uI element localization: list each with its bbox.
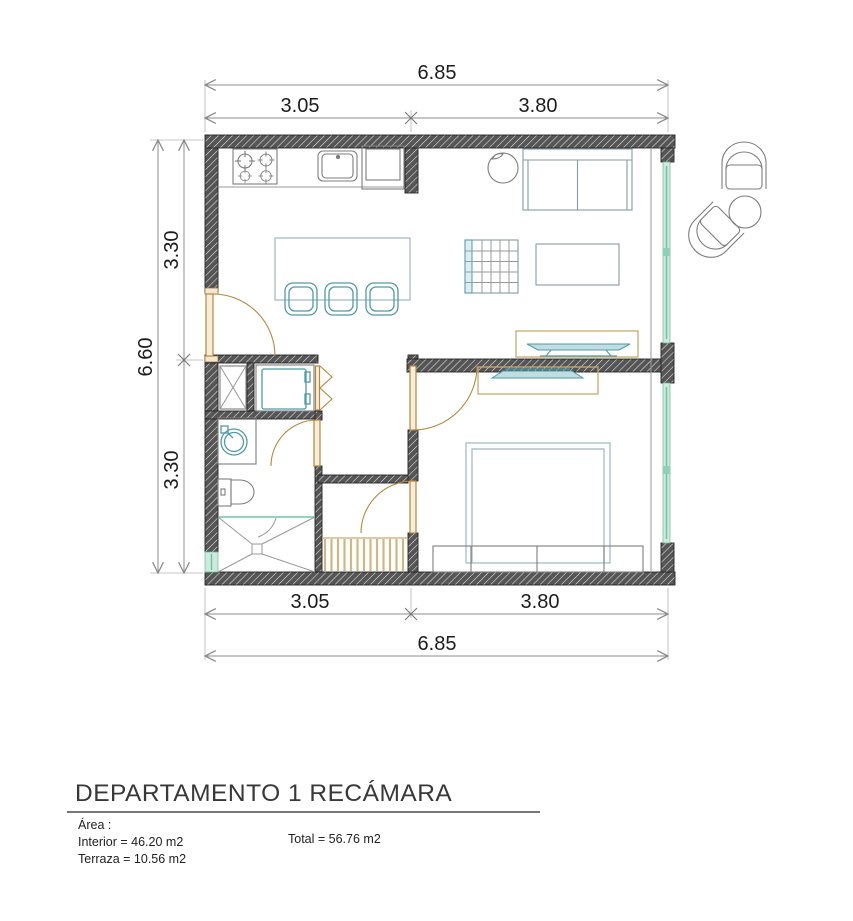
laundry [220,365,332,411]
kitchen-sink-icon [318,151,357,181]
window-pier-bottom [661,543,674,572]
floor-plan-drawing: 6.85 3.05 3.80 6.60 3.30 3.30 3.05 3.80 … [0,0,853,921]
bedroom-door-swing [413,366,477,430]
title-block: DEPARTAMENTO 1 RECÁMARA Área : Interior … [67,780,540,866]
window-pier-top [661,148,674,162]
bathroom-door [271,420,320,466]
wall-kitchen-stub [405,148,418,193]
bar-stools [285,283,398,315]
wall-bottom [205,572,675,585]
window-pier-middle [661,343,674,383]
total-area: Total = 56.76 m2 [288,832,381,846]
doors [205,288,477,533]
dim-bottom-right: 3.80 [521,591,560,613]
terrace-chair-2 [680,202,744,266]
walk-in-closet [322,538,407,571]
dim-bottom-left: 3.05 [291,591,330,613]
washer-icon [256,365,314,411]
dim-top-right: 3.80 [519,95,558,117]
terrace-chair-1 [722,142,766,189]
refrigerator-icon [362,146,404,189]
wall-mid-left [205,355,318,363]
dim-left-lower: 3.30 [161,451,183,490]
utility-shaft [220,366,246,409]
wall-hall-bedroom-c [408,533,418,572]
wall-left-upper [205,148,218,292]
wall-bath-stub [315,411,322,420]
terrace [680,142,766,266]
cooktop-icon [233,149,277,184]
coffee-table [536,244,619,285]
wall-left-lower [205,358,218,552]
wall-living-bedroom-divider [407,359,661,372]
kitchen [218,146,410,315]
glass-mullion-lower [663,466,670,474]
dim-bottom-total: 6.85 [418,633,457,655]
entry-door-swing [213,294,275,356]
toilet-icon [218,479,254,506]
kitchen-island [275,238,410,300]
closet-door [361,481,416,533]
terrace-area: Terraza = 10.56 m2 [78,852,186,866]
bathroom [218,418,315,572]
dim-left-total: 6.60 [135,338,157,377]
sheet-title: DEPARTAMENTO 1 RECÁMARA [75,780,452,807]
tv-living-icon [527,344,630,356]
vanity-sink [218,418,256,464]
wall-hall-bedroom-b [408,430,418,481]
dim-left-upper: 3.30 [161,231,183,270]
closet-door-swing [361,481,413,533]
bed-bench-storage [433,546,643,572]
wall-closet-top [318,475,408,483]
floor-plan-sheet: 6.85 3.05 3.80 6.60 3.30 3.30 3.05 3.80 … [0,0,853,921]
shower [218,517,315,572]
area-label: Área : [78,817,111,832]
bathroom-door-swing [271,420,317,466]
living-room [465,149,638,357]
bedroom-door [410,366,477,430]
wall-laundry-divider [247,363,254,411]
shelving-unit [465,240,518,293]
entry-door [205,288,275,362]
wall-top [205,135,675,148]
closet-hanging-rod [325,539,403,571]
sofa [523,149,632,210]
plant-icon [488,153,518,183]
laundry-bifold-door [316,366,333,410]
interior-area: Interior = 46.20 m2 [78,835,183,849]
glass-mullion-upper [663,248,670,256]
dim-top-left: 3.05 [281,95,320,117]
bed [466,443,610,563]
bedroom [433,367,643,572]
dim-top-total: 6.85 [418,62,457,84]
